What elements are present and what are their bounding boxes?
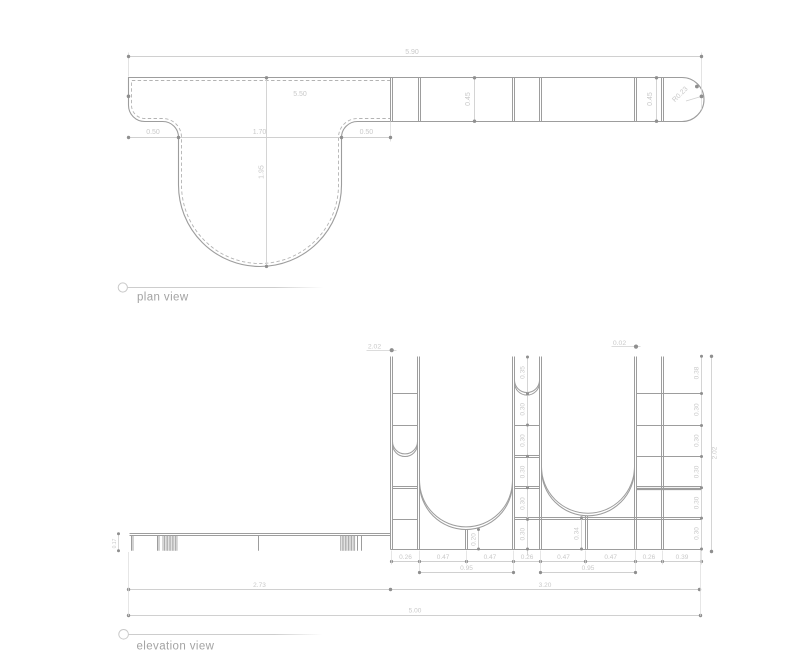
svg-text:0.02: 0.02 bbox=[613, 340, 626, 347]
svg-text:0.45: 0.45 bbox=[465, 92, 472, 106]
svg-text:0.17: 0.17 bbox=[112, 538, 118, 548]
svg-text:0.95: 0.95 bbox=[460, 565, 473, 572]
svg-text:0.47: 0.47 bbox=[557, 554, 570, 561]
svg-text:0.20: 0.20 bbox=[471, 533, 478, 546]
svg-text:0.45: 0.45 bbox=[647, 92, 654, 106]
svg-text:1.70: 1.70 bbox=[253, 129, 267, 136]
svg-text:0.47: 0.47 bbox=[484, 554, 497, 561]
svg-text:0.30: 0.30 bbox=[520, 465, 527, 478]
svg-text:0.30: 0.30 bbox=[520, 527, 527, 540]
svg-text:0.95: 0.95 bbox=[582, 565, 595, 572]
svg-text:2.02: 2.02 bbox=[712, 446, 719, 459]
svg-text:0.30: 0.30 bbox=[520, 497, 527, 510]
svg-text:2.73: 2.73 bbox=[253, 582, 266, 589]
svg-text:0.34: 0.34 bbox=[574, 527, 581, 540]
svg-text:0.26: 0.26 bbox=[521, 554, 534, 561]
svg-text:0.47: 0.47 bbox=[437, 554, 450, 561]
svg-text:5.00: 5.00 bbox=[409, 607, 422, 614]
svg-text:0.30: 0.30 bbox=[694, 496, 701, 509]
svg-text:plan view: plan view bbox=[137, 292, 189, 304]
svg-text:0.30: 0.30 bbox=[520, 403, 527, 416]
svg-text:0.38: 0.38 bbox=[694, 366, 701, 379]
svg-text:0.26: 0.26 bbox=[399, 554, 412, 561]
svg-text:5.50: 5.50 bbox=[293, 91, 307, 98]
svg-text:0.39: 0.39 bbox=[676, 554, 689, 561]
svg-text:5.90: 5.90 bbox=[405, 49, 419, 56]
svg-text:elevation view: elevation view bbox=[137, 641, 215, 653]
svg-text:0.30: 0.30 bbox=[520, 434, 527, 447]
svg-text:0.35: 0.35 bbox=[520, 366, 527, 379]
svg-text:2.02: 2.02 bbox=[368, 343, 381, 350]
svg-text:0.50: 0.50 bbox=[360, 129, 374, 136]
svg-text:0.26: 0.26 bbox=[643, 554, 656, 561]
svg-text:0.50: 0.50 bbox=[146, 129, 160, 136]
svg-text:0.30: 0.30 bbox=[694, 403, 701, 416]
svg-text:0.30: 0.30 bbox=[694, 527, 701, 540]
svg-text:0.47: 0.47 bbox=[604, 554, 617, 561]
svg-text:1.95: 1.95 bbox=[259, 165, 266, 179]
svg-text:3.20: 3.20 bbox=[539, 582, 552, 589]
svg-text:0.30: 0.30 bbox=[694, 434, 701, 447]
svg-text:0.30: 0.30 bbox=[694, 465, 701, 478]
